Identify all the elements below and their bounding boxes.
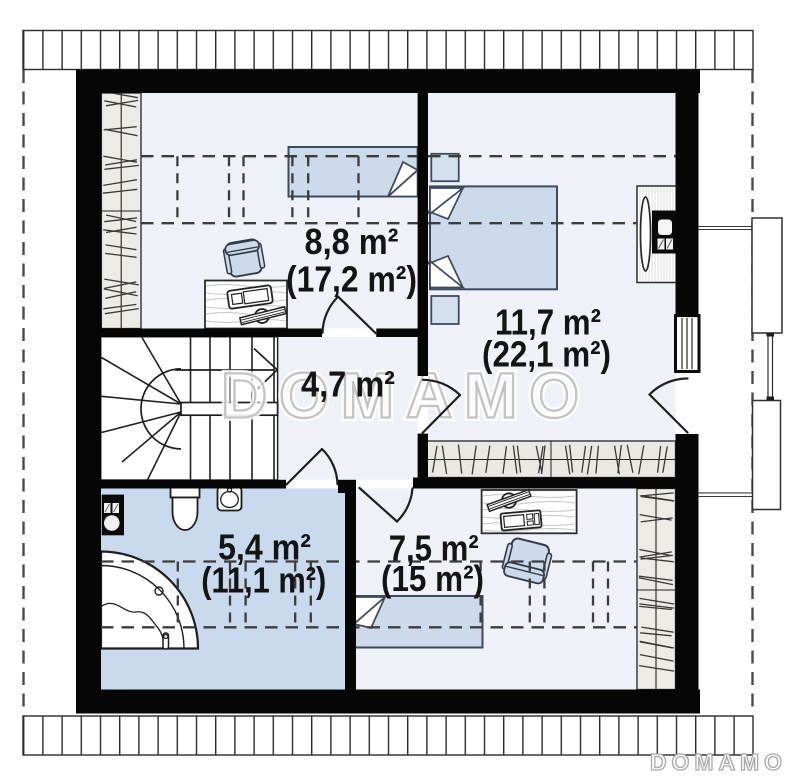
- svg-text:4,7 m²: 4,7 m²: [301, 364, 395, 405]
- svg-text:(22,1 m²): (22,1 m²): [482, 334, 611, 375]
- svg-text:8,8 m²: 8,8 m²: [305, 221, 399, 262]
- svg-text:(15 m²): (15 m²): [381, 558, 484, 599]
- svg-text:(11,1 m²): (11,1 m²): [201, 560, 326, 601]
- svg-text:(17,2 m²): (17,2 m²): [286, 259, 417, 300]
